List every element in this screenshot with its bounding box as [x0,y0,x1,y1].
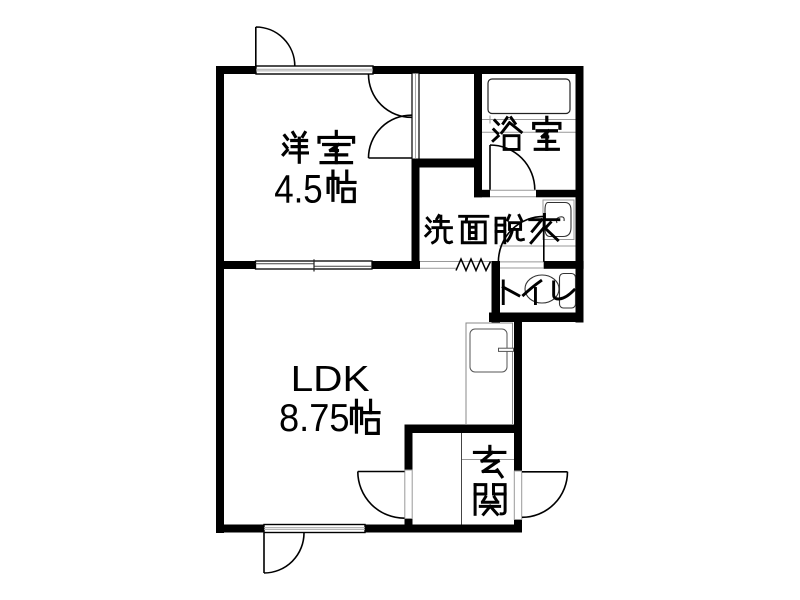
svg-text:LDK: LDK [291,358,370,399]
svg-text:8.75: 8.75 [279,397,350,440]
svg-text:4.5: 4.5 [274,167,323,211]
